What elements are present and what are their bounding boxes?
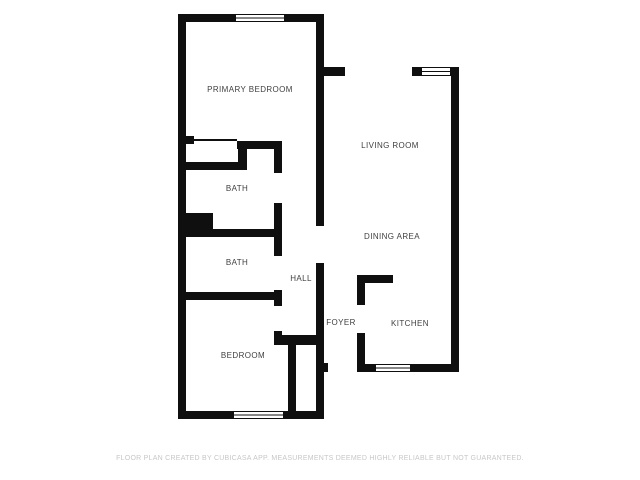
wall-segment xyxy=(357,275,393,283)
door-opening-primary-bedroom-doorway xyxy=(282,141,316,149)
door-opening-kitchen-opening xyxy=(357,305,365,333)
room-label-kitchen: KITCHEN xyxy=(391,319,429,328)
wall-segment xyxy=(274,141,282,173)
wall-segment xyxy=(274,335,323,345)
door-opening-living-room-top-opening xyxy=(345,67,412,76)
room-label-primary-bedroom: PRIMARY BEDROOM xyxy=(207,85,293,94)
room-label-living-room: LIVING ROOM xyxy=(361,141,419,150)
closet-sliding-door-line xyxy=(194,139,237,141)
wall-segment xyxy=(316,14,324,226)
room-label-foyer: FOYER xyxy=(326,318,356,327)
wall-segment xyxy=(178,162,247,170)
door-opening-hall-dining-opening xyxy=(316,226,324,263)
room-label-bedroom: BEDROOM xyxy=(221,351,265,360)
wall-segment xyxy=(178,411,233,419)
floor-plan-page: PRIMARY BEDROOMLIVING ROOMBATHDINING ARE… xyxy=(0,0,640,480)
wall-segment xyxy=(451,67,459,372)
door-opening-bath-lower-door xyxy=(274,256,282,290)
room-label-bath-upper: BATH xyxy=(226,184,248,193)
wall-segment xyxy=(178,292,282,300)
wall-segment xyxy=(357,333,365,372)
wall-segment xyxy=(324,67,345,76)
wall-segment xyxy=(178,213,213,234)
door-opening-entry-door xyxy=(328,363,357,372)
door-opening-bedroom-door xyxy=(274,306,282,331)
wall-segment xyxy=(323,363,328,372)
floor-plan-drawing: PRIMARY BEDROOMLIVING ROOMBATHDINING ARE… xyxy=(0,0,640,480)
wall-segment xyxy=(411,364,459,372)
wall-segment xyxy=(316,263,324,419)
door-opening-bath-upper-door xyxy=(274,173,282,203)
wall-segment xyxy=(288,345,296,411)
room-label-dining-area: DINING AREA xyxy=(364,232,420,241)
footer-disclaimer-text: FLOOR PLAN CREATED BY CUBICASA APP. MEAS… xyxy=(0,455,640,462)
wall-segment xyxy=(178,14,235,22)
room-label-bath-lower: BATH xyxy=(226,258,248,267)
wall-segment xyxy=(274,237,282,256)
room-label-hall: HALL xyxy=(290,274,312,283)
wall-segment xyxy=(186,136,194,144)
wall-segment xyxy=(412,67,421,76)
